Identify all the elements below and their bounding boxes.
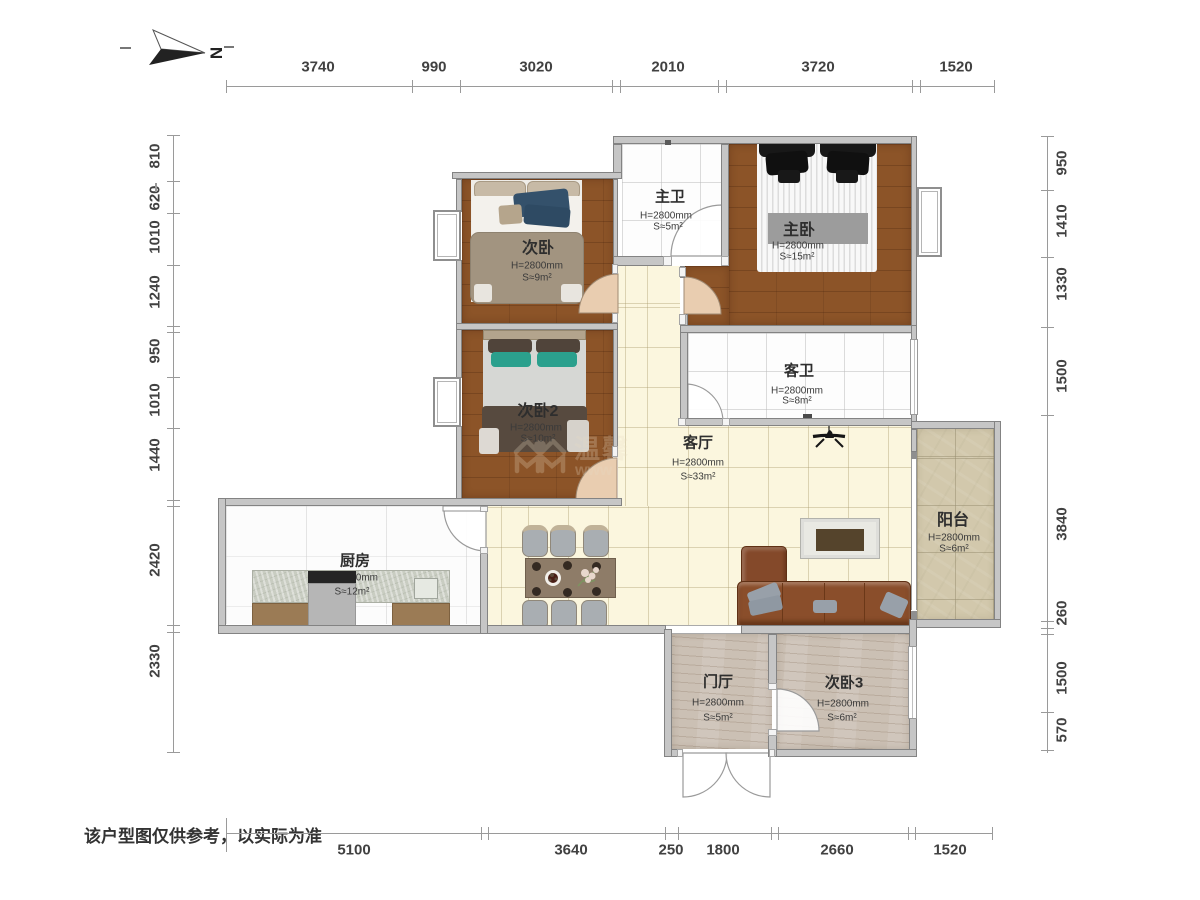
svg-text:温馨: 温馨 xyxy=(574,434,630,464)
svg-text:N: N xyxy=(207,47,226,59)
svg-text:www: www xyxy=(574,462,613,479)
